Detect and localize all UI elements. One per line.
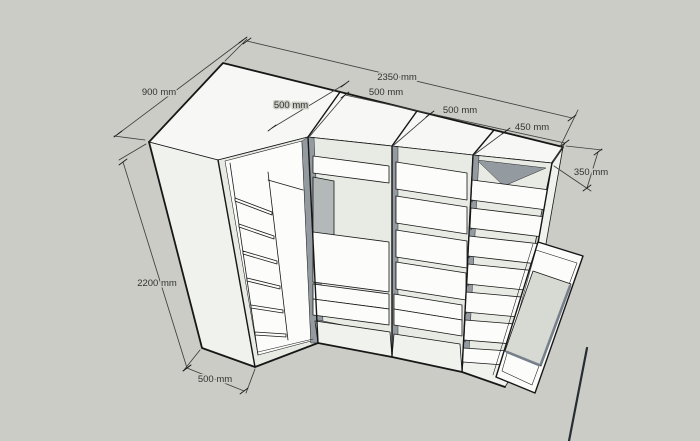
- dim-label-section3-width: 450 mm: [515, 122, 549, 133]
- dim-label-section1-width: 500 mm: [369, 87, 403, 98]
- viewport-canvas[interactable]: 900 mm 2350 mm 500 mm: [0, 0, 700, 441]
- dim-label-left-depth-top: 900 mm: [142, 87, 176, 98]
- sketchup-viewport: 900 mm 2350 mm 500 mm: [0, 0, 700, 441]
- dim-label-section2-width: 500 mm: [443, 105, 477, 116]
- dim-label-left-depth-bottom: 500 mm: [198, 374, 232, 385]
- section-1: [308, 137, 392, 357]
- section1-side-wall: [313, 177, 334, 237]
- dim-label-corner-front-width: 500 mm: [274, 100, 308, 111]
- dim-label-total-width: 2350 mm: [377, 72, 417, 83]
- dim-label-right-depth: 350 mm: [574, 167, 608, 178]
- section-2: [392, 146, 473, 372]
- section1-mid-shelf: [313, 232, 389, 292]
- dim-label-height: 2200 mm: [137, 278, 177, 289]
